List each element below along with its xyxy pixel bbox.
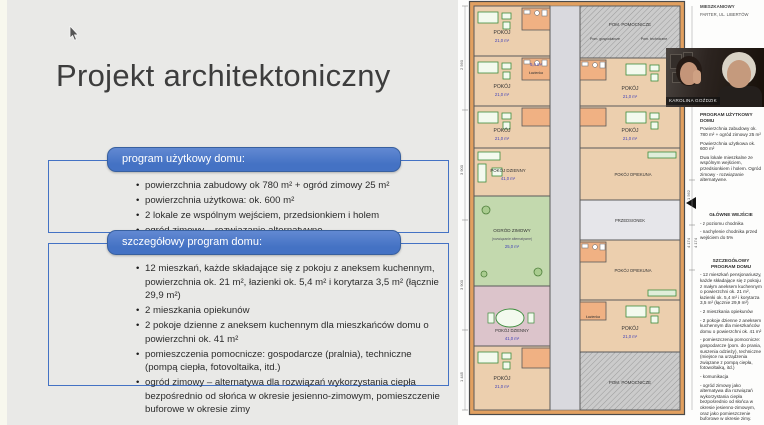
room-label: POKÓJ OPIEKUNA (615, 172, 652, 177)
room-label: POKÓJ (622, 325, 639, 332)
dim-label: 1 445 (459, 371, 464, 382)
dim-label: 3 900 (459, 279, 464, 290)
notes-paragraph: - 2 pokoje dzienne z aneksem kuchennym d… (700, 318, 762, 335)
room-area: 21,0 m² (495, 92, 510, 97)
detail-box-header: szczegółowy program domu: (107, 230, 401, 255)
notes-heading: PROGRAM UŻYTKOWY DOMU (700, 112, 762, 123)
notes-paragraph: Powierzchnia zabudowy ok. 780 m² + ogród… (700, 126, 762, 137)
room-area: 21,0 m² (495, 38, 510, 43)
room-sublabel: Pom. techniczne (641, 37, 668, 41)
plan-title-line2: PARTER, UL. LIBERTÓW (700, 12, 762, 17)
room-area: 41,0 m² (505, 336, 520, 341)
program-bullet: powierzchnia zabudowy ok 780 m² + ogród … (145, 179, 440, 193)
room-label: POKÓJ (622, 85, 639, 92)
program-bullet-list: powierzchnia zabudowy ok 780 m² + ogród … (49, 161, 448, 238)
room-sublabel: Łazienka (586, 315, 600, 319)
room-area: 21,0 m² (495, 136, 510, 141)
room-label: POKÓJ DZIENNY (495, 328, 529, 333)
detail-bullet: pomieszczenia pomocnicze: gospodarcze (p… (145, 348, 440, 375)
notes-heading: GŁÓWNE WEJŚCIE (700, 212, 762, 218)
notes-paragraph: - ogród zimowy jako alternatywa dla rozw… (700, 383, 762, 422)
notes-paragraph: - z poziomu chodnika (700, 221, 762, 227)
room-label: POKÓJ (494, 127, 511, 134)
room-area: 21,0 m² (623, 136, 638, 141)
mouse-cursor-icon (69, 26, 80, 42)
room-label: POKÓJ (494, 375, 511, 382)
participant-face (727, 60, 751, 88)
notes-paragraph: - nachylenie chodnika przed wejściem do … (700, 229, 762, 240)
room-label: POM. POMOCNICZE (609, 22, 651, 27)
slide-title: Projekt architektoniczny (56, 58, 456, 94)
notes-paragraph: - 12 mieszkań pensjonariuszy, każde skła… (700, 272, 762, 306)
floor-plan-drawing: 2 560 3 900 3 900 1 445 1 562 4 174 4 17… (458, 0, 700, 425)
notes-paragraph: Powierzchnia użytkowa ok. 600 m² (700, 141, 762, 152)
notes-entrance: GŁÓWNE WEJŚCIE - z poziomu chodnika - na… (700, 208, 762, 241)
room-label: OGRÓD ZIMOWY (493, 227, 531, 233)
room-area: 21,0 m² (623, 334, 638, 339)
dim-label: 3 900 (459, 164, 464, 175)
notes-paragraph: - pomieszczenia pomocnicze: gospodarcze … (700, 337, 762, 371)
program-bullet: powierzchnia użytkowa: ok. 600 m² (145, 194, 440, 208)
detail-bullet: 12 mieszkań, każde składające się z poko… (145, 262, 440, 303)
room-sublabel: (rozwiązanie alternatywne) (492, 237, 532, 241)
dim-label: 1 562 (686, 189, 691, 200)
room-area: 21,0 m² (495, 384, 510, 389)
notes-paragraph: - 2 mieszkania opiekunów (700, 309, 762, 315)
webcam-video-tile[interactable]: KAROLINA GOŹDZIK (666, 48, 764, 107)
room-label: POKÓJ (622, 127, 639, 134)
dim-label: 4 174 (686, 237, 691, 248)
room-label: POKÓJ (494, 83, 511, 90)
dim-label: 4 174 (693, 237, 698, 248)
notes-paragraph: Dwa lokale mieszkalne ze wspólnym wejści… (700, 155, 762, 183)
room-area: 25,0 m² (505, 244, 520, 249)
notes-paragraph: - komunikacja (700, 374, 762, 380)
room-label: POKÓJ DZIENNY (490, 168, 525, 173)
room-label: POM. POMOCNICZE (609, 380, 651, 385)
participant-hand (693, 70, 701, 84)
room-label: PRZEDSIONEK (615, 218, 645, 223)
program-box-header: program użytkowy domu: (107, 147, 401, 172)
participant-name-label: KAROLINA GOŹDZIK (666, 97, 720, 105)
dim-label: 2 560 (459, 59, 464, 70)
plan-title-line1: MIESZKANIOWY (700, 4, 762, 9)
detail-bullet: 2 pokoje dzienne z aneksem kuchennym dla… (145, 319, 440, 346)
detail-bullet: ogród zimowy – alternatywa dla rozwiązań… (145, 376, 440, 417)
room-sublabel: Łazienka (529, 71, 543, 75)
notes-detail: SZCZEGÓŁOWY PROGRAM DOMU - 12 mieszkań p… (700, 254, 762, 422)
detail-box: 12 mieszkań, każde składające się z poko… (48, 243, 449, 386)
slide-edge-strip (0, 0, 7, 425)
program-bullet: 2 lokale ze wspólnym wejściem, przedsion… (145, 209, 440, 223)
detail-bullet-list: 12 mieszkań, każde składające się z poko… (49, 244, 448, 417)
room-label: POKÓJ OPIEKUNA (615, 268, 652, 273)
room-area: 41,0 m² (501, 176, 516, 181)
notes-program: PROGRAM UŻYTKOWY DOMU Powierzchnia zabud… (700, 108, 762, 183)
detail-bullet: 2 mieszkania opiekunów (145, 304, 440, 318)
room-label: POKÓJ (494, 29, 511, 36)
room-area: 5,4 m² (530, 62, 542, 67)
room-area: 21,0 m² (623, 94, 638, 99)
notes-heading: SZCZEGÓŁOWY PROGRAM DOMU (700, 258, 762, 269)
room-sublabel: Pom. gospodarcze (590, 37, 620, 41)
participant-body (718, 86, 762, 107)
